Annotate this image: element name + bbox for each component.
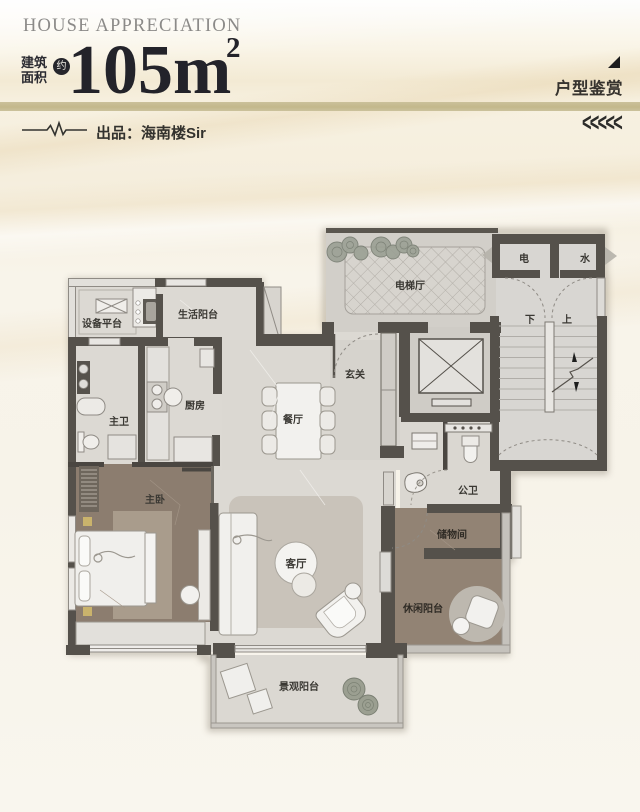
svg-text:设备平台: 设备平台 xyxy=(82,317,122,330)
svg-text:休闲阳台: 休闲阳台 xyxy=(402,602,443,615)
svg-text:餐厅: 餐厅 xyxy=(282,413,303,426)
svg-text:客厅: 客厅 xyxy=(285,557,307,570)
svg-text:景观阳台: 景观阳台 xyxy=(279,680,319,693)
svg-text:上: 上 xyxy=(562,313,572,326)
svg-text:公卫: 公卫 xyxy=(458,485,478,497)
svg-text:水: 水 xyxy=(579,252,591,265)
svg-text:玄关: 玄关 xyxy=(345,368,365,381)
svg-text:电: 电 xyxy=(519,252,529,265)
svg-text:主卧: 主卧 xyxy=(145,493,165,506)
svg-text:储物间: 储物间 xyxy=(436,528,467,541)
svg-text:主卫: 主卫 xyxy=(109,415,129,428)
svg-text:生活阳台: 生活阳台 xyxy=(178,308,218,321)
svg-text:电梯厅: 电梯厅 xyxy=(395,279,425,292)
svg-text:下: 下 xyxy=(525,314,535,326)
svg-text:厨房: 厨房 xyxy=(185,399,205,412)
